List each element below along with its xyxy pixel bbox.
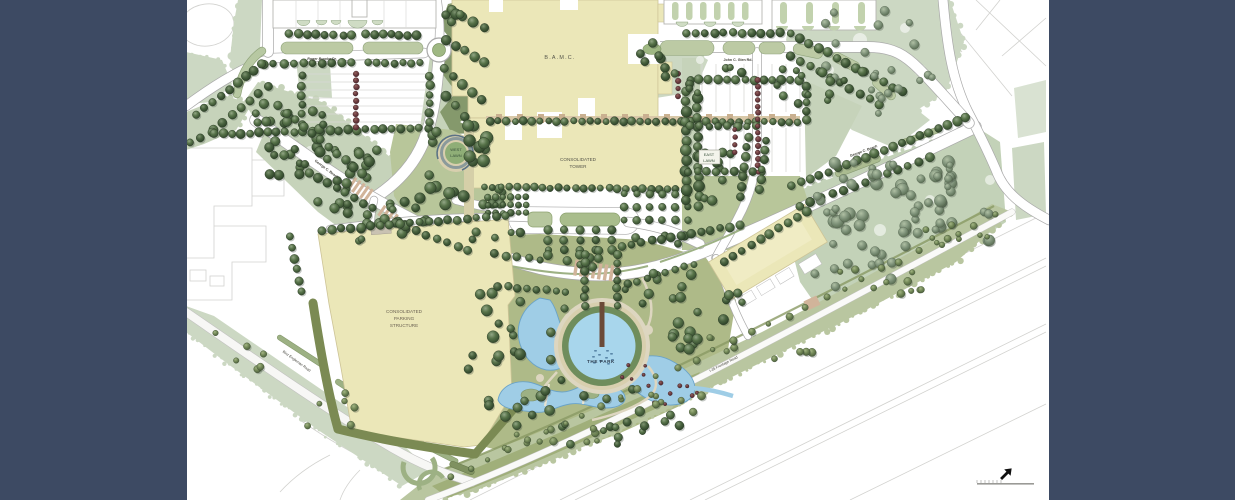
svg-text:TOWER: TOWER	[569, 164, 587, 169]
svg-text:PARKING: PARKING	[394, 316, 415, 321]
svg-text:John C. Glen Rd.: John C. Glen Rd.	[724, 58, 753, 62]
svg-text:EAST: EAST	[704, 152, 715, 157]
svg-text:WEST: WEST	[450, 147, 462, 152]
svg-text:LAWN: LAWN	[450, 153, 462, 158]
svg-text:CONSOLIDATED: CONSOLIDATED	[560, 157, 597, 162]
svg-text:LAWN: LAWN	[703, 158, 715, 163]
svg-text:STRUCTURE: STRUCTURE	[390, 323, 418, 328]
svg-text:CONSOLIDATED: CONSOLIDATED	[386, 309, 423, 314]
svg-text:Roger Brooke Dr.: Roger Brooke Dr.	[307, 57, 337, 61]
svg-text:B.A.M.C.: B.A.M.C.	[544, 55, 575, 61]
svg-text:THE PARK: THE PARK	[587, 359, 615, 364]
